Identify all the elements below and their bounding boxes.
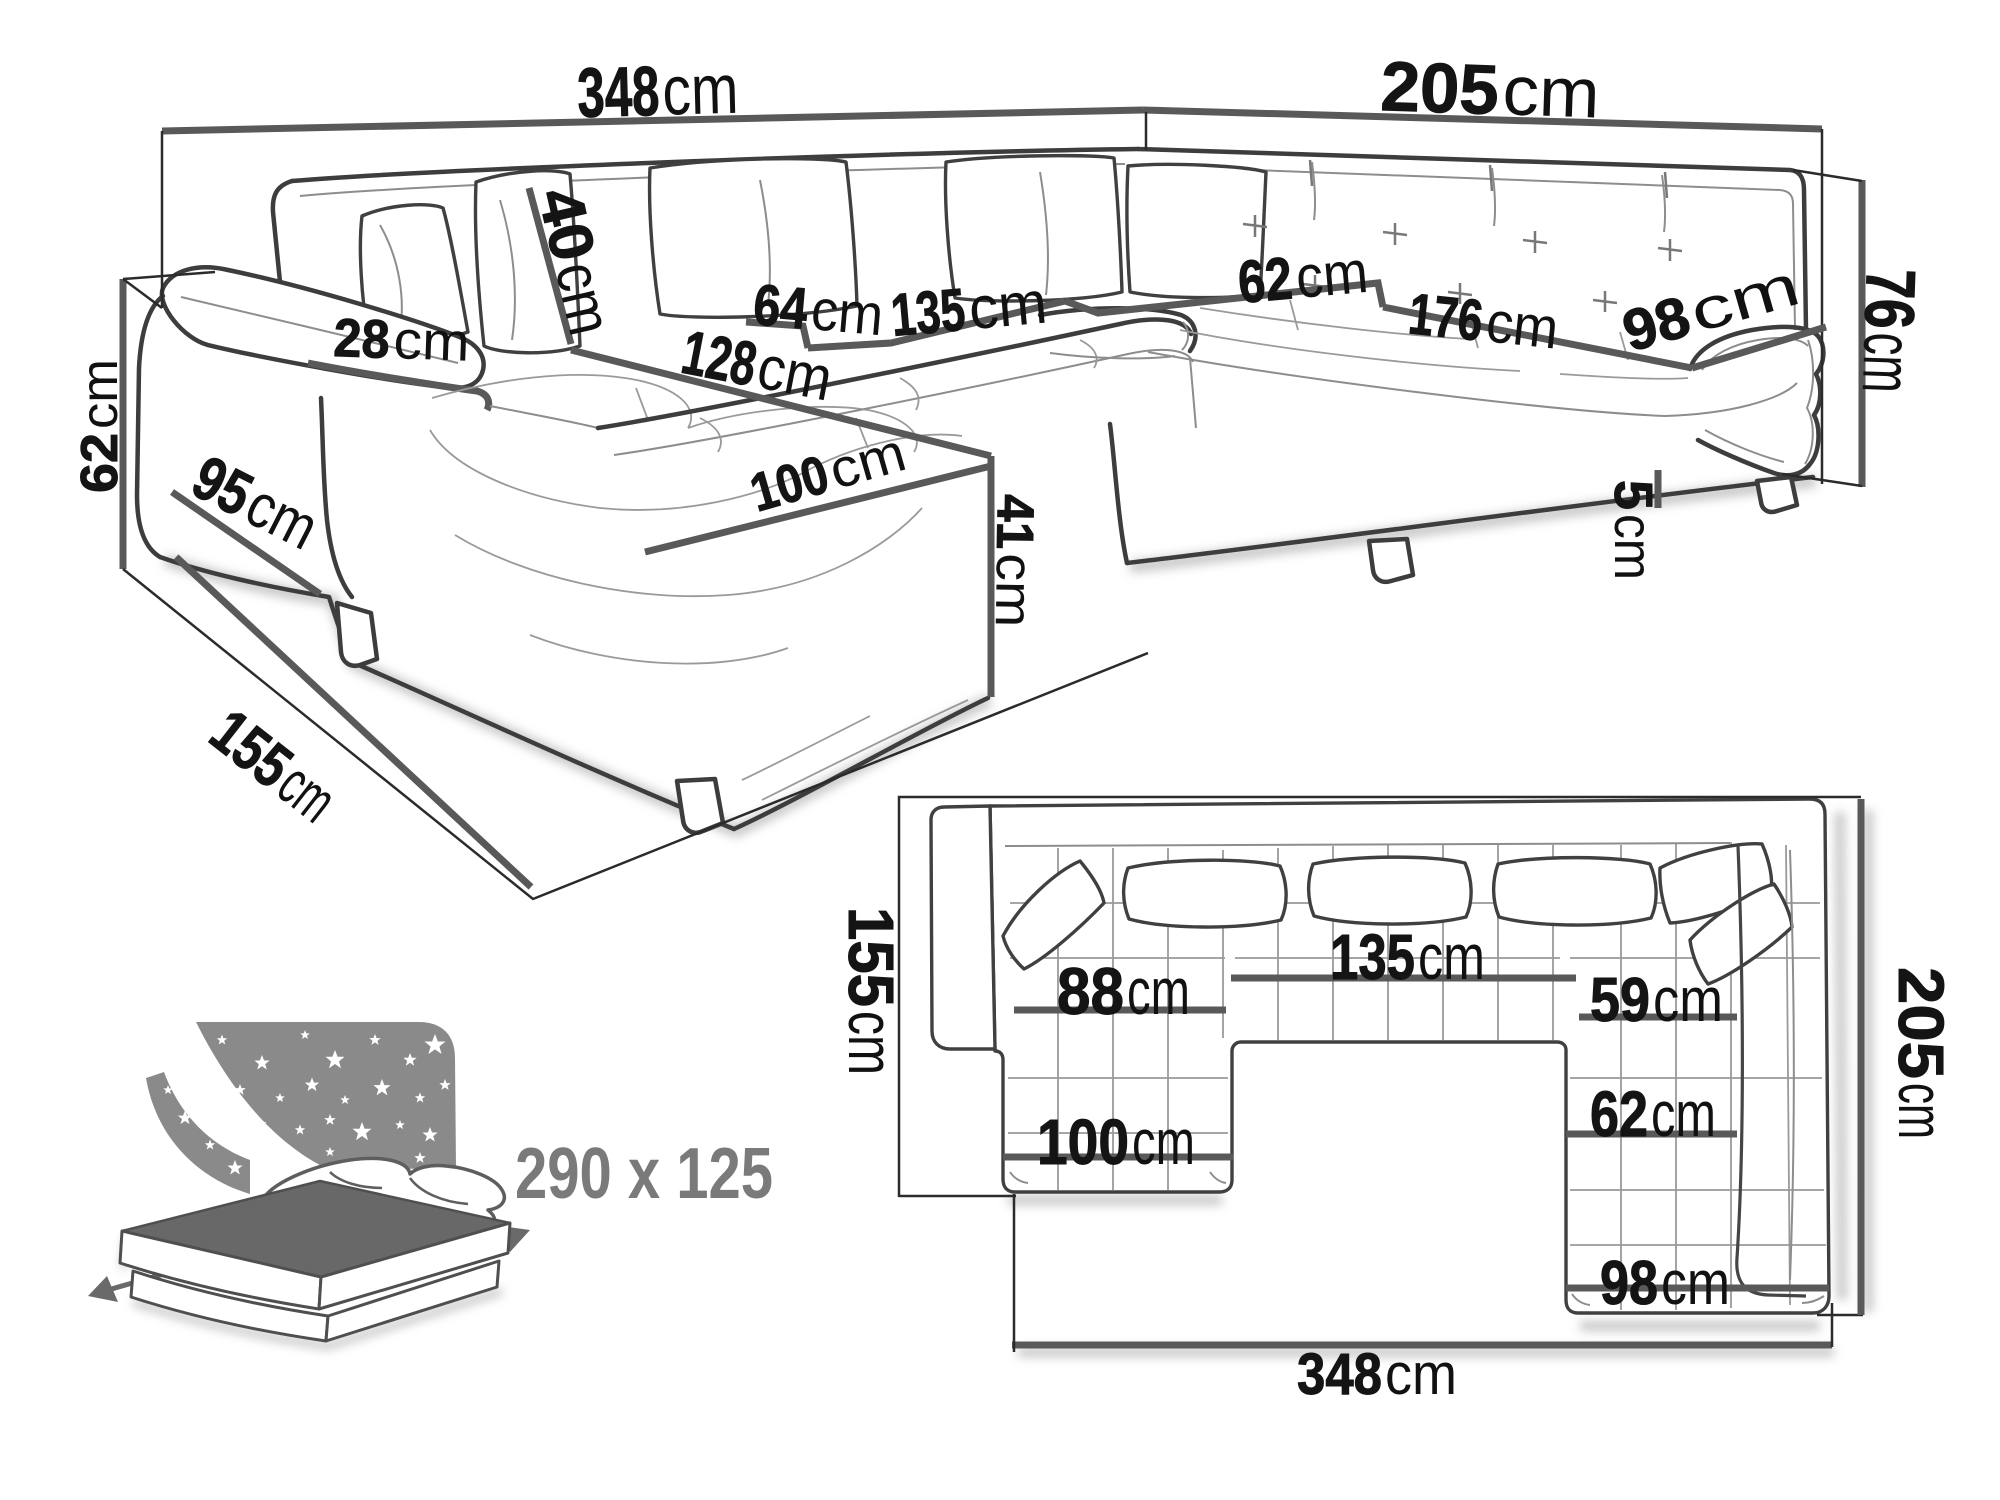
- svg-text:cm: cm: [809, 277, 886, 348]
- svg-text:cm: cm: [1651, 1078, 1716, 1150]
- svg-text:348: 348: [576, 52, 660, 132]
- svg-text:cm: cm: [1127, 954, 1190, 1028]
- svg-text:cm: cm: [1653, 966, 1723, 1035]
- svg-text:205: 205: [1885, 967, 1957, 1079]
- svg-text:62: 62: [1235, 244, 1295, 315]
- svg-text:290 x 125: 290 x 125: [515, 1134, 773, 1214]
- svg-text:cm: cm: [71, 359, 129, 429]
- svg-text:cm: cm: [966, 269, 1050, 343]
- svg-text:348: 348: [1297, 1342, 1382, 1407]
- svg-text:205: 205: [1379, 47, 1500, 129]
- svg-text:cm: cm: [1661, 1249, 1730, 1318]
- svg-text:100: 100: [1037, 1106, 1129, 1178]
- svg-text:cm: cm: [1385, 1342, 1457, 1407]
- svg-text:cm: cm: [661, 50, 739, 130]
- svg-text:62: 62: [71, 433, 129, 493]
- svg-text:cm: cm: [1603, 514, 1663, 580]
- svg-text:41: 41: [985, 494, 1044, 550]
- svg-text:cm: cm: [1885, 1083, 1957, 1139]
- svg-text:5: 5: [1603, 480, 1663, 510]
- svg-text:76: 76: [1850, 267, 1930, 330]
- svg-text:28: 28: [333, 308, 391, 370]
- svg-text:135: 135: [1330, 921, 1415, 993]
- svg-text:cm: cm: [984, 553, 1043, 628]
- svg-text:cm: cm: [1501, 51, 1601, 132]
- svg-text:59: 59: [1590, 966, 1650, 1035]
- svg-text:cm: cm: [1418, 921, 1485, 993]
- svg-text:cm: cm: [835, 1011, 907, 1075]
- svg-text:88: 88: [1057, 954, 1124, 1028]
- svg-text:cm: cm: [393, 310, 471, 373]
- svg-text:176: 176: [1406, 281, 1486, 353]
- svg-text:128: 128: [676, 318, 762, 400]
- svg-text:cm: cm: [1848, 331, 1928, 394]
- svg-text:98: 98: [1600, 1249, 1658, 1318]
- svg-text:cm: cm: [1132, 1106, 1195, 1178]
- svg-text:cm: cm: [752, 333, 838, 415]
- svg-text:155: 155: [835, 907, 907, 1007]
- svg-text:135: 135: [888, 276, 968, 349]
- svg-text:cm: cm: [1293, 238, 1371, 311]
- svg-text:62: 62: [1590, 1078, 1648, 1150]
- svg-text:cm: cm: [1483, 289, 1561, 361]
